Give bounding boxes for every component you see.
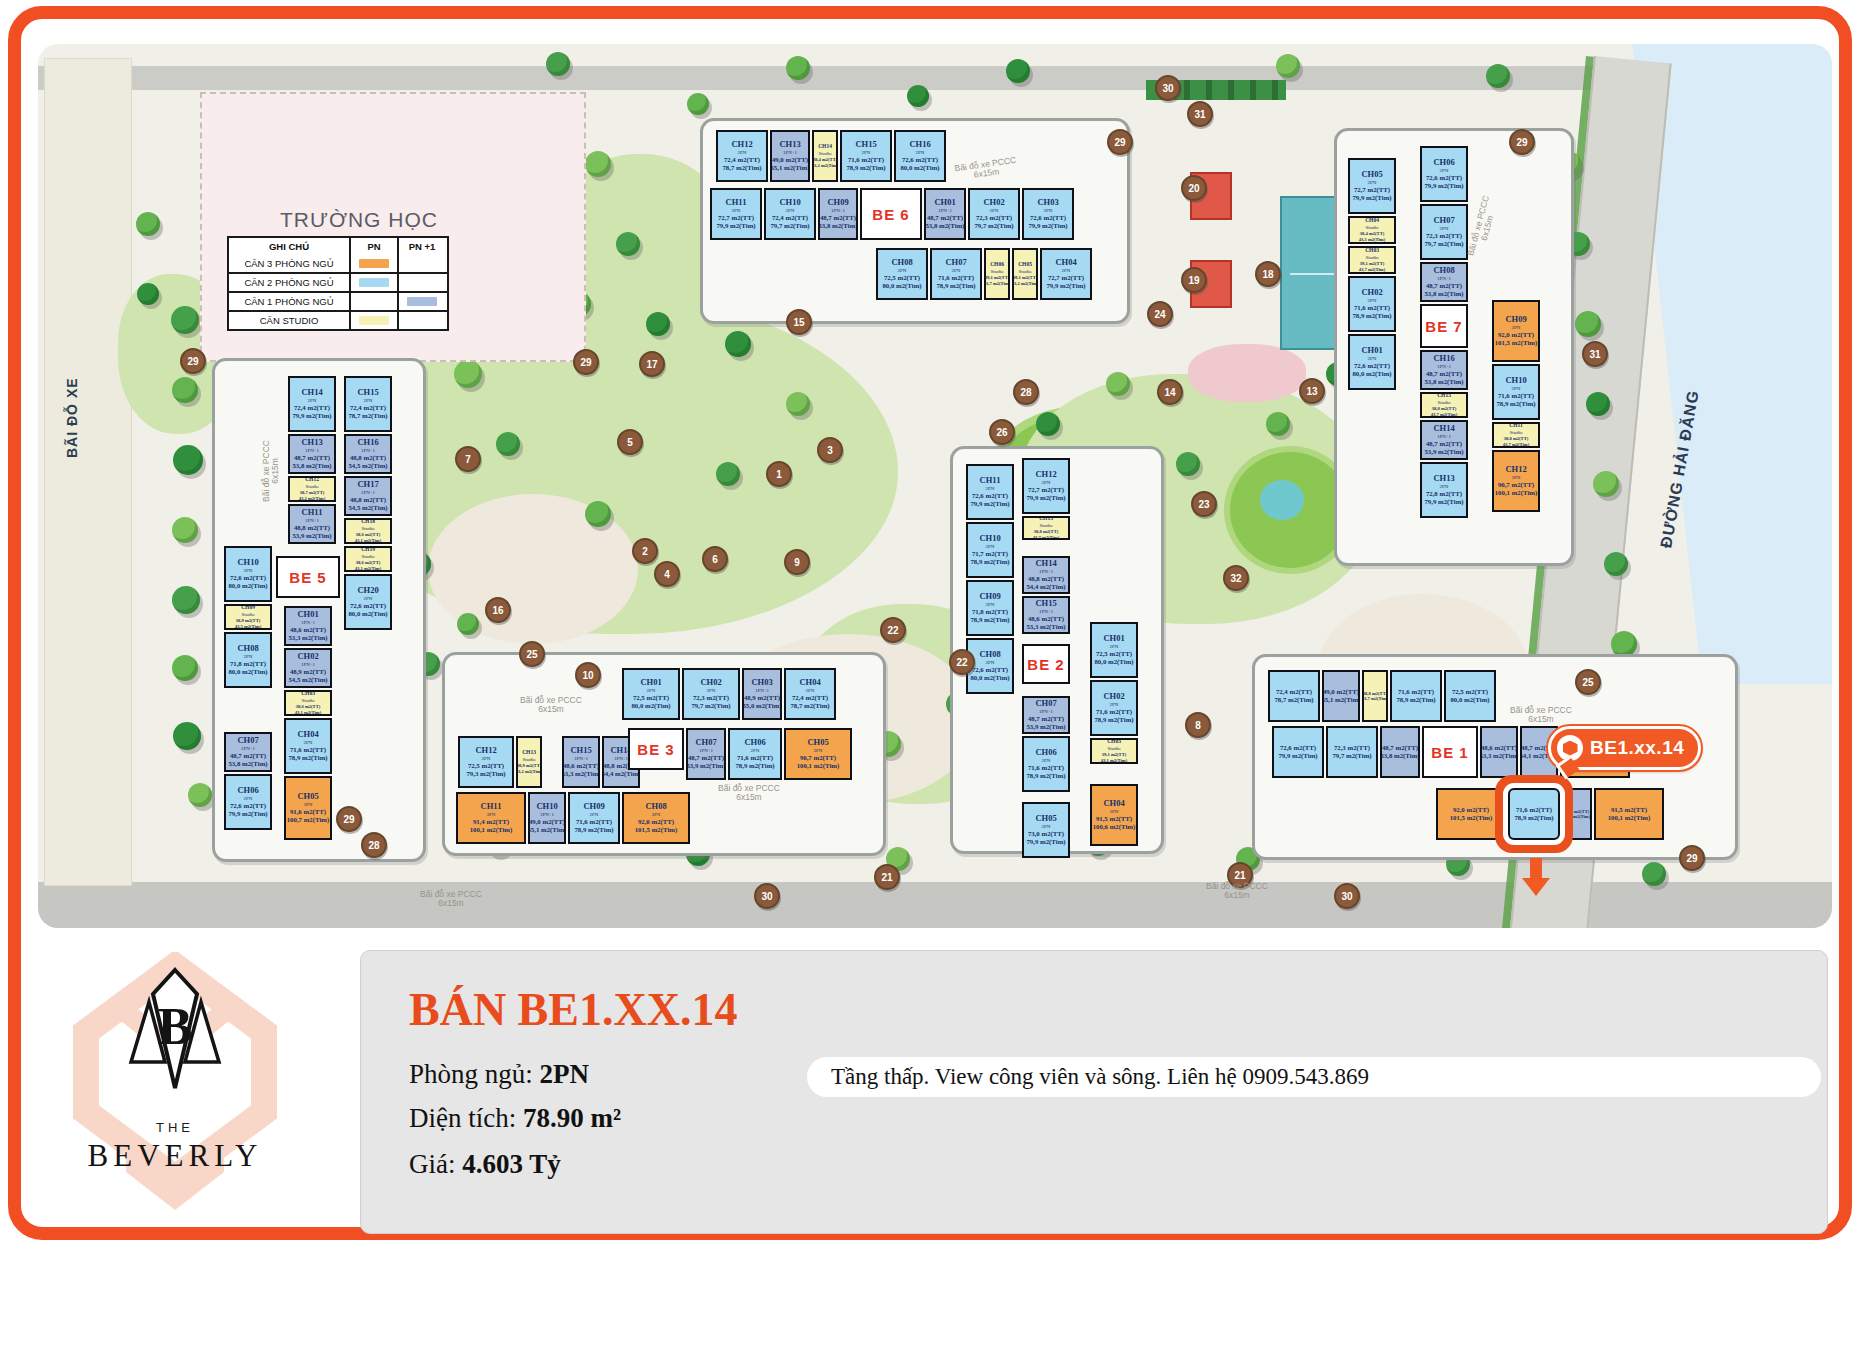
landmark-number: 19 [1181,267,1207,293]
unit-cell[interactable]: CH032PN72,6 m2(TT)79,9 m2(Tim) [1022,188,1074,240]
unit-cell[interactable]: CH042PN71,6 m2(TT)78,9 m2(Tim) [284,718,332,774]
road-label-left: BÃI ĐỖ XE [64,438,80,458]
unit-cell[interactable]: CH03Studio39,1 m2(TT)43,1 m2(Tim) [1090,738,1138,764]
legend-swatch-pn [351,274,399,291]
legend-header-pn1: PN +1 [399,238,445,255]
landmark-number: 14 [1157,379,1183,405]
unit-cell[interactable]: CH052PN73,0 m2(TT)79,9 m2(Tim) [1022,802,1070,858]
legend-row-label: CĂN 1 PHÒNG NGỦ [229,293,351,310]
unit-cell[interactable]: CH021PN+148,9 m2(TT)54,5 m2(Tim) [284,648,332,688]
area-line: Diện tích: 78.90 m² [409,1103,621,1134]
callout-label: BE1.xx.14 [1590,737,1684,759]
pccc-label: Bãi đỗ xe PCCC6x15m [262,440,280,502]
unit-cell[interactable]: CH053PN90,7 m2(TT)100,1 m2(Tim) [784,728,852,780]
logo-the: THE [66,1120,284,1135]
unit-cell[interactable]: CH19Studio38,6 m2(TT)43,1 m2(Tim) [344,546,392,572]
unit-cell[interactable]: CH072PN72,3 m2(TT)79,7 m2(Tim) [1420,204,1468,260]
landmark-number: 26 [989,419,1015,445]
unit-cell[interactable]: CH162PN72,6 m2(TT)80,0 m2(Tim) [894,130,946,182]
landmark-number: 4 [654,561,680,587]
logo-name: BEVERLY [66,1138,284,1174]
landmark-number: 22 [949,649,975,675]
unit-cell[interactable]: CH132PN72,8 m2(TT)79,9 m2(Tim) [1420,462,1468,518]
landmark-number: 5 [617,429,643,455]
legend-swatch-pn [351,293,399,310]
pccc-label: Bãi đỗ xe PCCC6x15m [718,784,780,802]
landmark-number: 9 [784,549,810,575]
unit-cell[interactable]: CH11Studio38,8 m2(TT)43,7 m2(Tim) [1492,422,1540,448]
legend-header-ghichu: GHI CHÚ [229,238,351,255]
landmark-number: 29 [1107,129,1133,155]
unit-cell[interactable]: CH052PN72,7 m2(TT)79,9 m2(Tim) [1348,158,1396,214]
legend-row: CĂN STUDIO [229,310,447,329]
cell-group: CH112PN72,7 m2(TT)79,9 m2(Tim)CH102PN72,… [710,188,1074,240]
down-arrow-icon [1522,858,1550,896]
landmark-number: 18 [1255,261,1281,287]
unit-cell[interactable]: CH053PN91,6 m2(TT)100,7 m2(Tim) [284,776,332,840]
landmark-number: 29 [180,348,206,374]
legend-row-label: CĂN 2 PHÒNG NGỦ [229,274,351,291]
highlighted-unit-cell[interactable]: 71,6 m2(TT)78,9 m2(Tim) [1508,788,1560,840]
cell-group: CH062PN72,6 m2(TT)79,9 m2(Tim)CH072PN72,… [1420,146,1468,518]
unit-cell[interactable]: CH141PN+148,8 m2(TT)54,4 m2(Tim) [1022,556,1070,594]
unit-cell[interactable]: CH031PN+148,9 m2(TT)55,0 m2(Tim) [742,668,782,720]
landmark-number: 10 [575,662,601,688]
road-label-right: ĐƯỜNG HẢI ĐĂNG [1657,389,1703,550]
landmark-number: 22 [880,617,906,643]
unit-cell[interactable]: CH14Studio38,4 m2(TT)43,2 m2(Tim) [812,130,838,182]
unit-cell[interactable]: CH062PN72,6 m2(TT)79,9 m2(Tim) [1420,146,1468,202]
unit-cell[interactable]: CH13Studio38,9 m2(TT)43,2 m2(Tim) [516,736,542,788]
unit-cell[interactable]: CH12Studio38,7 m2(TT)43,2 m2(Tim) [288,476,336,502]
unit-cell[interactable]: CH03Studio38,6 m2(TT)43,1 m2(Tim) [284,690,332,716]
bedrooms-line: Phòng ngủ: 2PN [409,1059,589,1090]
unit-cell[interactable]: CH152PN72,4 m2(TT)78,7 m2(Tim) [344,376,392,432]
beverly-emblem-icon: B [125,966,225,1106]
unit-cell[interactable]: CH062PN72,6 m2(TT)79,9 m2(Tim) [224,774,272,830]
unit-cell[interactable]: CH071PN+148,7 m2(TT)53,9 m2(Tim) [686,728,726,780]
landmark-number: 30 [754,883,780,909]
unit-cell[interactable]: CH122PN72,5 m2(TT)79,3 m2(Tim) [458,736,514,788]
area-value: 78.90 m² [523,1103,621,1133]
legend-table: GHI CHÚ PN PN +1 CĂN 3 PHÒNG NGỦCĂN 2 PH… [227,236,449,331]
unit-cell[interactable]: CH092PN71,8 m2(TT)78,9 m2(Tim) [966,580,1014,636]
cell-group: CH122PN72,5 m2(TT)79,3 m2(Tim)CH13Studio… [458,736,640,788]
building-label: BE 5 [276,556,340,598]
unit-cell[interactable]: CH081PN+148,7 m2(TT)53,8 m2(Tim) [1420,262,1468,302]
landmark-number: 32 [1223,565,1249,591]
unit-cell[interactable]: CH113PN91,4 m2(TT)100,1 m2(Tim) [456,792,526,844]
area-label: Diện tích: [409,1103,516,1133]
unit-cell[interactable]: CH022PN72,3 m2(TT)79,7 m2(Tim) [682,668,740,720]
unit-cell[interactable]: CH18Studio38,6 m2(TT)43,1 m2(Tim) [344,518,392,544]
price-label: Giá: [409,1149,456,1179]
landmark-number: 29 [573,349,599,375]
unit-cell[interactable]: CH082PN71,8 m2(TT)80,0 m2(Tim) [224,632,272,688]
unit-cell[interactable]: CH012PN72,6 m2(TT)80,0 m2(Tim) [1348,334,1396,390]
pccc-label: Bãi đỗ xe PCCC6x15m [420,890,482,908]
legend-row: CĂN 1 PHÒNG NGỦ [229,291,447,310]
legend-swatch-pn [351,312,399,329]
landmark-number: 2 [632,538,658,564]
building-label: BE 2 [1022,644,1070,684]
unit-cell[interactable]: 49,0 m2(TT)55,1 m2(Tim) [1562,788,1592,840]
unit-cell[interactable]: CH083PN92,0 m2(TT)101,5 m2(Tim) [622,792,690,844]
price-line: Giá: 4.603 Tỷ [409,1149,561,1180]
school-title: TRƯỜNG HỌC [280,208,438,232]
listing-title: BÁN BE1.XX.14 [409,983,737,1036]
unit-cell[interactable]: CH022PN71,6 m2(TT)78,9 m2(Tim) [1090,680,1138,736]
unit-cell[interactable]: 72,6 m2(TT)79,9 m2(Tim) [1272,726,1324,778]
unit-cell[interactable]: 71,6 m2(TT)78,9 m2(Tim) [1390,670,1442,722]
legend-row: CĂN 3 PHÒNG NGỦ [229,255,447,272]
unit-cell[interactable]: CH161PN+148,8 m2(TT)54,5 m2(Tim) [344,434,392,474]
unit-cell[interactable]: CH071PN+148,7 m2(TT)53,9 m2(Tim) [1022,696,1070,734]
legend-swatch-pn1 [399,255,445,272]
unit-cell[interactable]: CH122PN72,4 m2(TT)78,7 m2(Tim) [716,130,768,182]
unit-cell[interactable]: 48,6 m2(TT)53,3 m2(Tim) [1480,726,1518,778]
unit-cell[interactable]: CH142PN72,4 m2(TT)79,9 m2(Tim) [288,376,336,432]
pccc-label: Bãi đỗ xe PCCC6x15m [1206,882,1268,900]
cell-group: CH011PN+148,6 m2(TT)53,3 m2(Tim)CH021PN+… [284,606,332,840]
unit-cell[interactable]: CH062PN71,6 m2(TT)78,9 m2(Tim) [728,728,782,780]
landmark-number: 31 [1187,101,1213,127]
unit-cell[interactable]: CH043PN91,5 m2(TT)100,6 m2(Tim) [1090,784,1138,846]
pccc-label: Bãi đỗ xe PCCC6x15m [520,696,582,714]
legend-header-pn: PN [351,238,399,255]
unit-cell[interactable]: CH102PN71,6 m2(TT)78,9 m2(Tim) [1492,364,1540,420]
unit-cell[interactable]: CH082PN72,5 m2(TT)80,0 m2(Tim) [876,248,928,300]
unit-cell[interactable]: CH042PN72,7 m2(TT)79,9 m2(Tim) [1040,248,1092,300]
landmark-number: 25 [1575,669,1601,695]
legend-rows: CĂN 3 PHÒNG NGỦCĂN 2 PHÒNG NGỦCĂN 1 PHÒN… [229,255,447,329]
cell-group: CH152PN72,4 m2(TT)78,7 m2(Tim)CH161PN+14… [344,376,392,630]
landmark-number: 30 [1155,75,1181,101]
cell-group: CH082PN72,5 m2(TT)80,0 m2(Tim)CH072PN71,… [876,248,1092,300]
cell-group: CH052PN72,7 m2(TT)79,9 m2(Tim)CH04Studio… [1348,158,1396,390]
unit-cell[interactable]: 72,5 m2(TT)80,0 m2(Tim) [1444,670,1496,722]
bedrooms-label: Phòng ngủ: [409,1059,533,1089]
landmark-number: 31 [1582,341,1608,367]
unit-cell[interactable]: 72,4 m2(TT)78,7 m2(Tim) [1268,670,1320,722]
unit-cell[interactable]: CH05Studio39,1 m2(TT)43,2 m2(Tim) [1012,248,1038,300]
legend-header: GHI CHÚ PN PN +1 [229,238,447,255]
unit-cell[interactable]: CH13Studio38,8 m2(TT)43,7 m2(Tim) [1022,516,1070,540]
unit-cell[interactable]: CH151PN+148,6 m2(TT)53,3 m2(Tim) [1022,596,1070,634]
unit-cell[interactable]: CH091PN+148,7 m2(TT)53,8 m2(Tim) [818,188,858,240]
unit-cell[interactable]: CH112PN72,6 m2(TT)79,9 m2(Tim) [966,464,1014,520]
unit-cell[interactable]: CH042PN72,4 m2(TT)78,7 m2(Tim) [784,668,836,720]
unit-cell[interactable]: CH011PN+148,6 m2(TT)53,3 m2(Tim) [284,606,332,646]
landmark-number: 7 [455,446,481,472]
svg-text:B: B [158,998,193,1055]
cell-group: 92,0 m2(TT)101,5 m2(Tim)71,6 m2(TT)78,9 … [1436,788,1664,840]
unit-cell[interactable]: CH03Studio39,1 m2(TT)43,7 m2(Tim) [1348,246,1396,274]
listing-panel: BÁN BE1.XX.14 Phòng ngủ: 2PN Diện tích: … [360,950,1828,1234]
landmark-number: 13 [1299,378,1325,404]
unit-cell[interactable]: CH171PN+148,8 m2(TT)54,5 m2(Tim) [344,476,392,516]
legend-swatch-pn1 [399,274,445,291]
unit-cell[interactable]: 49,0 m2(TT)55,1 m2(Tim) [1322,670,1360,722]
landmark-number: 6 [702,546,728,572]
landmark-number: 29 [336,806,362,832]
landmark-number: 30 [1334,883,1360,909]
unit-cell[interactable]: 92,0 m2(TT)101,5 m2(Tim) [1436,788,1506,840]
pccc-label: Bãi đỗ xe PCCC6x15m [1510,706,1572,724]
legend-row-label: CĂN 3 PHÒNG NGỦ [229,255,351,272]
unit-cell[interactable]: 38,8 m2(TT)43,7 m2(Tim) [1362,670,1388,722]
landmark-number: 23 [1191,491,1217,517]
landmark-number: 17 [639,351,665,377]
landmark-number: 21 [874,864,900,890]
unit-cell[interactable]: CH152PN71,6 m2(TT)78,9 m2(Tim) [840,130,892,182]
landmark-number: 20 [1181,175,1207,201]
unit-cell[interactable]: CH09Studio38,9 m2(TT)43,5 m2(Tim) [224,604,272,630]
cell-group: CH012PN72,5 m2(TT)80,0 m2(Tim)CH022PN71,… [1090,622,1138,846]
unit-cell[interactable]: CH022PN71,6 m2(TT)78,9 m2(Tim) [1348,276,1396,332]
unit-cell[interactable]: 48,7 m2(TT)53,8 m2(Tim) [1380,726,1420,778]
landmark-number: 29 [1509,129,1535,155]
landmark-number: 29 [1679,845,1705,871]
unit-cell[interactable]: CH011PN+148,7 m2(TT)53,8 m2(Tim) [924,188,966,240]
brand-logo: B THE BEVERLY [66,952,284,1220]
unit-cell[interactable]: CH131PN+149,0 m2(TT)55,1 m2(Tim) [770,130,810,182]
unit-cell[interactable]: CH012PN72,5 m2(TT)80,0 m2(Tim) [1090,622,1138,678]
unit-cell[interactable]: CH161PN+148,7 m2(TT)53,8 m2(Tim) [1420,350,1468,390]
unit-cell[interactable]: CH102PN72,6 m2(TT)80,0 m2(Tim) [224,546,272,602]
unit-cell[interactable]: CH15Studio38,8 m2(TT)43,7 m2(Tim) [1420,392,1468,418]
unit-cell[interactable]: CH092PN71,6 m2(TT)78,9 m2(Tim) [568,792,620,844]
landmark-number: 8 [1185,712,1211,738]
landmark-number: 16 [485,597,511,623]
cell-group: CH102PN72,6 m2(TT)80,0 m2(Tim)CH09Studio… [224,546,272,830]
unit-cell[interactable]: CH112PN72,7 m2(TT)79,9 m2(Tim) [710,188,762,240]
cell-group: BE 5 [276,556,340,598]
building-label: BE 3 [628,728,684,770]
unit-cell[interactable]: CH123PN90,7 m2(TT)100,1 m2(Tim) [1492,450,1540,512]
unit-cell[interactable]: CH102PN71,7 m2(TT)78,9 m2(Tim) [966,522,1014,578]
price-value: 4.603 Tỷ [462,1149,561,1179]
unit-cell[interactable]: CH062PN71,6 m2(TT)78,9 m2(Tim) [1022,736,1070,792]
page: TRƯỜNG HỌC GHI CHÚ PN PN +1 CĂN 3 PHÒNG … [0,0,1864,1366]
note-bar: Tầng thấp. View công viên và sông. Liên … [807,1057,1821,1097]
unit-cell[interactable]: CH071PN+148,7 m2(TT)53,8 m2(Tim) [224,732,272,772]
unit-cell[interactable]: CH04Studio38,4 m2(TT)43,1 m2(Tim) [1348,216,1396,244]
landmark-number: 1 [766,461,792,487]
landmark-number: 24 [1147,301,1173,327]
legend-row-label: CĂN STUDIO [229,312,351,329]
unit-cell[interactable]: CH122PN72,7 m2(TT)79,9 m2(Tim) [1022,458,1070,514]
cell-group: CH122PN72,4 m2(TT)78,7 m2(Tim)CH131PN+14… [716,130,946,182]
cell-group: CH113PN91,4 m2(TT)100,1 m2(Tim)CH101PN+1… [456,792,690,844]
unit-cell[interactable]: 72,3 m2(TT)79,7 m2(Tim) [1326,726,1378,778]
landmark-number: 3 [817,437,843,463]
landmark-number: 28 [1013,379,1039,405]
bedrooms-value: 2PN [540,1059,590,1089]
cell-group: CH122PN72,7 m2(TT)79,9 m2(Tim)CH13Studio… [1022,458,1070,858]
unit-cell[interactable]: CH06Studio39,1 m2(TT)43,7 m2(Tim) [984,248,1010,300]
cell-group: CH093PN92,0 m2(TT)101,5 m2(Tim)CH102PN71… [1492,300,1540,512]
unit-cell[interactable]: CH102PN72,4 m2(TT)79,7 m2(Tim) [764,188,816,240]
cell-group: CH142PN72,4 m2(TT)79,9 m2(Tim)CH131PN+14… [288,376,336,544]
building-label: BE 7 [1420,304,1468,348]
legend-row: CĂN 2 PHÒNG NGỦ [229,272,447,291]
unit-cell[interactable]: CH022PN72,3 m2(TT)79,7 m2(Tim) [968,188,1020,240]
building-label: BE 1 [1422,726,1478,778]
unit-cell[interactable]: CH111PN+148,8 m2(TT)53,9 m2(Tim) [288,504,336,544]
unit-cell[interactable]: 91,5 m2(TT)100,1 m2(Tim) [1594,788,1664,840]
cell-group: BE 3CH071PN+148,7 m2(TT)53,9 m2(Tim)CH06… [628,728,852,780]
unit-cell[interactable]: CH101PN+149,0 m2(TT)55,1 m2(Tim) [528,792,566,844]
legend-swatch-pn1 [399,312,445,329]
unit-cell[interactable]: CH202PN72,6 m2(TT)80,0 m2(Tim) [344,574,392,630]
landmark-number: 28 [361,832,387,858]
legend-swatch-pn1 [399,293,445,310]
cell-group: 72,4 m2(TT)78,7 m2(Tim)49,0 m2(TT)55,1 m… [1268,670,1496,722]
unit-cell[interactable]: CH072PN71,6 m2(TT)78,9 m2(Tim) [930,248,982,300]
landmark-number: 25 [519,641,545,667]
unit-cell[interactable]: CH151PN+148,6 m2(TT)53,3 m2(Tim) [562,736,600,788]
unit-cell[interactable]: CH141PN+148,7 m2(TT)53,9 m2(Tim) [1420,420,1468,460]
landmark-number: 15 [786,309,812,335]
unit-cell[interactable]: CH131PN+148,7 m2(TT)53,8 m2(Tim) [288,434,336,474]
unit-callout[interactable]: BE1.xx.14 [1548,726,1701,770]
legend-swatch-pn [351,255,399,272]
unit-cell[interactable]: CH012PN72,5 m2(TT)80,0 m2(Tim) [622,668,680,720]
cell-group: CH012PN72,5 m2(TT)80,0 m2(Tim)CH022PN72,… [622,668,836,720]
building-label: BE 6 [860,188,922,240]
unit-cell[interactable]: CH093PN92,0 m2(TT)101,5 m2(Tim) [1492,300,1540,362]
